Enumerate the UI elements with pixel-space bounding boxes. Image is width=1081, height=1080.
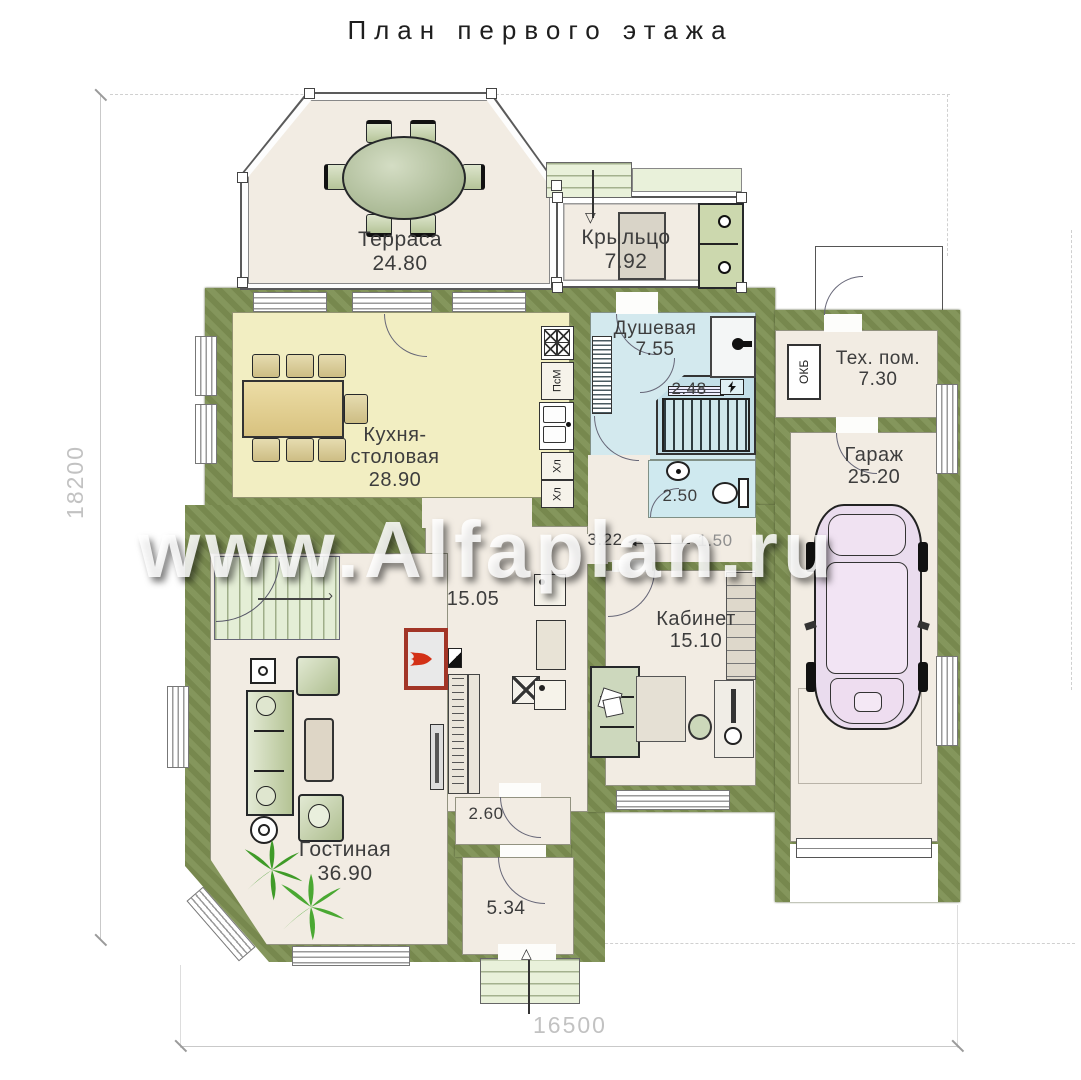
hallway-label-left: 3.22 [578, 530, 632, 549]
window [936, 656, 958, 746]
papers-icon [602, 696, 623, 717]
wc-sink-icon [666, 461, 690, 481]
kitchen-label: Кухня-столовая 28.90 [322, 424, 468, 491]
porch-post [736, 282, 747, 293]
porch-post [736, 192, 747, 203]
hallway-arrowhead: ◀ [628, 536, 637, 548]
entry-arrowhead: △ [521, 946, 532, 962]
dining-chair [318, 354, 346, 378]
fridge-label: Хл [542, 481, 573, 507]
car-wheel [806, 662, 816, 692]
stove-icon [541, 326, 574, 360]
hallway-label-right: 1.50 [688, 531, 742, 550]
porch-bench [698, 203, 744, 289]
entry-arrow-line [528, 960, 530, 1014]
boiler-label: ОКБ [789, 346, 819, 398]
corridor-label: 2.60 [458, 804, 514, 823]
tv-bench [430, 724, 444, 790]
window [452, 292, 526, 312]
tv-screen [435, 733, 439, 783]
window [195, 336, 217, 396]
door-opening-corridor [499, 783, 541, 797]
living-armchair [296, 656, 340, 696]
cabinet-knob [539, 685, 545, 691]
fridge-box-top: Хл [541, 452, 574, 480]
dim-extension [957, 905, 958, 1048]
door-opening-entry [500, 845, 546, 857]
dim-extension [180, 965, 181, 1048]
speaker-cone [258, 666, 268, 676]
window [352, 292, 432, 312]
terrace-table [342, 136, 466, 220]
sofa-cushion-line [254, 770, 284, 772]
burner-icon [557, 342, 570, 356]
window [195, 404, 217, 464]
flame-icon [409, 650, 433, 668]
porch-label: Крыльцо 7.92 [558, 226, 694, 273]
car-icon [814, 504, 922, 730]
cabinet-desk [636, 676, 686, 742]
machine-bar [731, 689, 736, 723]
window [616, 790, 730, 810]
sofa-cushion-line [600, 726, 634, 728]
hallway-arrow-line [636, 543, 690, 544]
dining-chair [286, 354, 314, 378]
window [253, 292, 327, 312]
cabinet-label: Кабинет 15.10 [636, 608, 756, 653]
lightning-icon [727, 381, 737, 393]
hall-cabinet-icon [534, 680, 566, 710]
page-title: План первого этажа [0, 16, 1081, 45]
terrace-post [237, 277, 248, 288]
dim-tick [95, 934, 107, 946]
exercise-machine-icon [714, 680, 754, 758]
sauna-label: 2.48 [666, 379, 712, 398]
terrace-post [237, 172, 248, 183]
machine-wheel [724, 727, 742, 745]
terrace-post [304, 88, 315, 99]
fireplace-hearth [448, 648, 462, 668]
dim-label-horizontal: 16500 [470, 1012, 670, 1039]
hall-cabinet-icon [534, 574, 566, 606]
toilet-tank [738, 478, 749, 508]
staircase-arrow [258, 598, 330, 600]
floor-plan-canvas: План первого этажа 18200 16500 Терраса 2… [0, 0, 1081, 1080]
coffee-table [304, 718, 334, 782]
dim-line-left [100, 95, 101, 940]
terrace-post [486, 88, 497, 99]
dining-chair [344, 394, 368, 424]
living-label: Гостиная 36.90 [275, 838, 415, 885]
boundary-line-far-right [1071, 230, 1072, 690]
entry-label: 5.34 [476, 898, 536, 919]
dim-line-bottom [180, 1046, 958, 1047]
garage-door-line [797, 848, 931, 849]
sofa-armrest [256, 696, 276, 716]
porch-planter [632, 168, 742, 192]
staircase-arrowhead: › [328, 588, 334, 605]
car-wheel [918, 662, 928, 692]
garage-door [796, 838, 932, 858]
hall-label: 15.05 [438, 588, 508, 610]
burner-icon [544, 329, 557, 343]
porch-entry-arrowhead: ▽ [585, 210, 596, 226]
porch-post [552, 282, 563, 293]
sink-basin [543, 426, 566, 443]
door-opening-tech-porch [824, 314, 862, 332]
terrace-post [551, 180, 562, 191]
cabinet-knob [539, 579, 545, 585]
desk-chair [688, 714, 712, 740]
fridge-box-bottom: Хл [541, 480, 574, 508]
shower-handle-bar [742, 341, 752, 347]
terrace-label: Терраса 24.80 [330, 228, 470, 275]
bench-divider [700, 243, 738, 245]
window-bay-bottom [292, 946, 410, 966]
sauna-bench-slats [662, 398, 750, 452]
fridge-label: Хл [542, 453, 573, 479]
wc-label: 2.50 [654, 486, 706, 505]
dim-label-vertical: 18200 [62, 445, 89, 519]
kitchen-sink-icon [539, 402, 574, 450]
dining-chair [286, 438, 314, 462]
living-armchair [298, 794, 344, 842]
car-cabin [826, 562, 908, 674]
boundary-line-right-upper [947, 94, 948, 256]
wardrobe-divider [467, 675, 469, 793]
burner-icon [557, 329, 570, 343]
wardrobe-rail [452, 678, 464, 788]
window [936, 384, 958, 474]
sofa-armrest [256, 786, 276, 806]
sofa-cushion-line [254, 730, 284, 732]
speaker-cone [258, 824, 270, 836]
shower-label: Душевая 7.55 [600, 318, 710, 361]
window [167, 686, 189, 768]
garage-label: Гараж 25.20 [824, 444, 924, 489]
sink-drain [676, 469, 681, 474]
hall-console-table [536, 620, 566, 670]
kitchen-hall-opening [422, 498, 532, 528]
living-sofa [246, 690, 294, 816]
dishwasher-box: ПсМ [541, 362, 574, 400]
dishwasher-label: ПсМ [542, 363, 573, 399]
sauna-heater-box [720, 379, 744, 395]
burner-icon [544, 342, 557, 356]
bench-cup [718, 215, 731, 228]
cabinet-sofa [590, 666, 640, 758]
dim-tick [95, 89, 107, 101]
toilet-icon [712, 482, 738, 504]
car-rear-window [828, 514, 906, 556]
boiler-box: ОКБ [787, 344, 821, 400]
car-grille [854, 692, 882, 712]
door-opening-porch [616, 292, 658, 314]
boundary-line-top [110, 94, 950, 95]
tech-label: Тех. пом. 7.30 [822, 348, 934, 391]
bench-cup [718, 261, 731, 274]
porch-post [552, 192, 563, 203]
armchair-seat [308, 804, 330, 828]
boundary-line-bottom-right [585, 943, 1075, 944]
car-wheel [806, 542, 816, 572]
dining-chair [252, 438, 280, 462]
fireplace [404, 628, 448, 690]
door-opening-tech-garage [836, 417, 878, 433]
sink-basin [543, 406, 566, 423]
dining-chair [252, 354, 280, 378]
entry-steps [480, 958, 580, 1004]
car-wheel [918, 542, 928, 572]
hall-wardrobe-strip [448, 674, 480, 794]
sink-faucet [566, 422, 571, 427]
speaker-icon [250, 658, 276, 684]
